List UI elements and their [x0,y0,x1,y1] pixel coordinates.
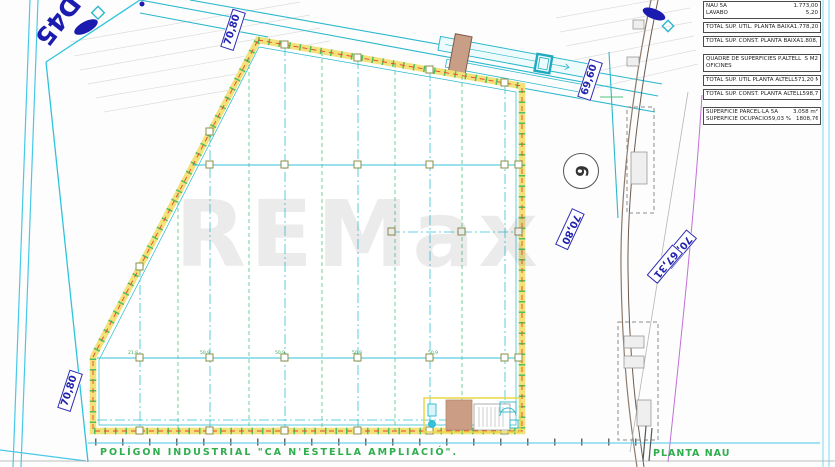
table-row: TOTAL SUP. ÚTIL PLANTA ALTELL 571,20 M² [706,77,818,84]
table-row: TOTAL SUP. CONST. PLANTA BAIXA 1.808,76 … [706,38,818,45]
table-row: SUPERFÍCIE PARCEL·LA 5A 3.058 m² [706,109,818,116]
table-row: TOTAL SUP. CONST. PLANTA ALTELL 598,74 M… [706,91,818,98]
project-title: POLÍGON INDUSTRIAL "CA N'ESTELLA AMPLIAC… [100,447,458,458]
table-row: TOTAL SUP. ÚTIL. PLANTA BAIXA 1.778,20 m… [706,24,818,31]
surface-tables: NAU 5A 1.773,00 LAVABO 5,20 TOTAL SUP. Ú… [703,1,821,128]
table-row: OFICINES [706,63,818,70]
interior-dimension: 50,9 [200,351,210,356]
table-row: NAU 5A 1.773,00 [706,3,818,10]
interior-dimension: 50,9 [428,351,438,356]
interior-dimension: 21,8 [128,351,138,356]
drawing-title: PLANTA NAU [653,448,730,459]
table-total-util-altell: TOTAL SUP. ÚTIL PLANTA ALTELL 571,20 M² [703,75,821,86]
parcel-number: 6 [571,164,592,178]
lamp-dot [140,2,145,7]
parcel-number-badge: 6 [563,153,599,189]
table-row: LAVABO 5,20 [706,10,818,17]
table-planta-baixa-rooms: NAU 5A 1.773,00 LAVABO 5,20 [703,1,821,19]
stairs [474,404,510,430]
interior-dimension: 50,9 [275,351,285,356]
sheet-edge-right [823,0,829,467]
table-total-const-altell: TOTAL SUP. CONST. PLANTA ALTELL 598,74 M… [703,89,821,100]
interior-dimension: 50,9 [352,351,362,356]
lavabo-room [446,400,472,430]
table-parcella: SUPERFÍCIE PARCEL·LA 5A 3.058 m² SUPERFÍ… [703,107,821,125]
pool-rectangle [535,54,553,73]
table-altell-header: QUADRE DE SUPERFICIES P.ALTELL S M2 OFIC… [703,54,821,72]
table-total-util-baixa: TOTAL SUP. ÚTIL. PLANTA BAIXA 1.778,20 m… [703,22,821,33]
table-total-const-baixa: TOTAL SUP. CONST. PLANTA BAIXA 1.808,76 … [703,36,821,47]
table-row: SUPERFÍCIE OCUPACIÓ 59,03 % 1808,76 m² [706,116,818,123]
table-row: QUADRE DE SUPERFICIES P.ALTELL S M2 [706,56,818,63]
